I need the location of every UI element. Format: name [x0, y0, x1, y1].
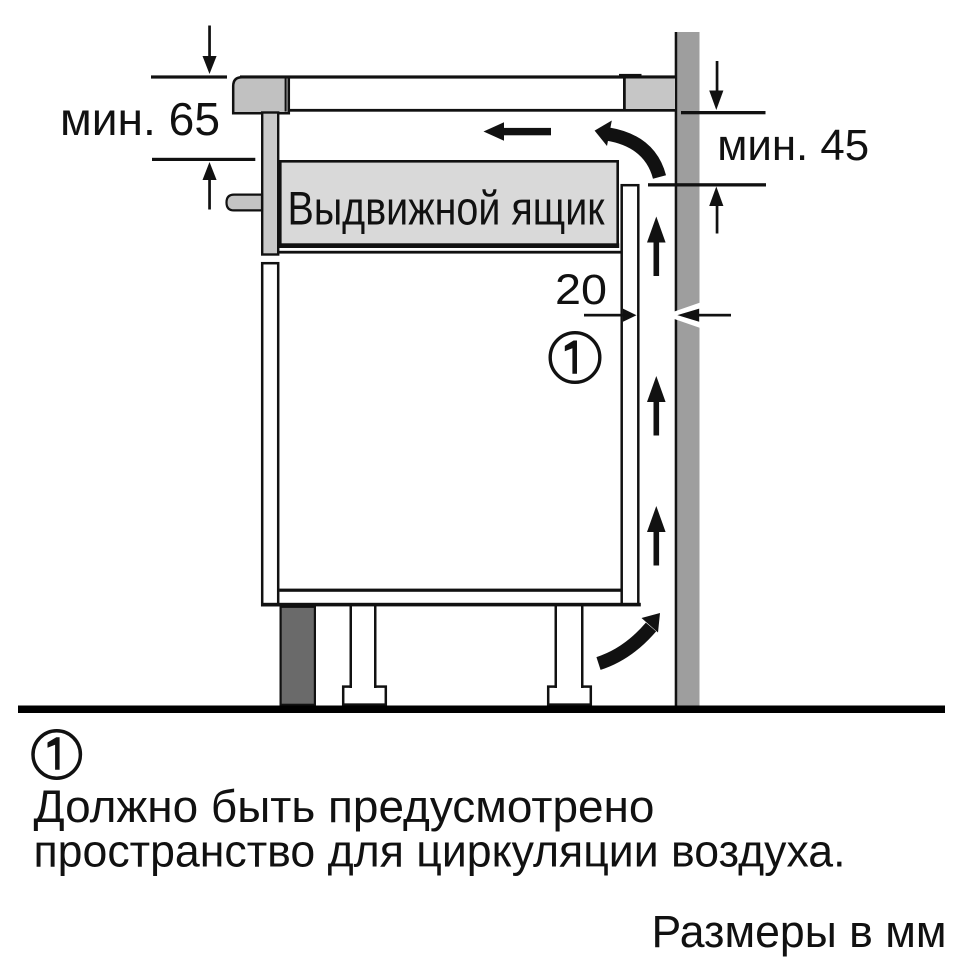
- svg-text:пространство для циркуляции во: пространство для циркуляции воздуха.: [34, 826, 846, 877]
- svg-text:Размеры в мм: Размеры в мм: [652, 906, 947, 957]
- svg-text:Выдвижной ящик: Выдвижной ящик: [288, 182, 605, 235]
- svg-text:мин. 65: мин. 65: [60, 93, 220, 145]
- svg-text:20: 20: [555, 266, 607, 314]
- svg-text:Должно быть предусмотрено: Должно быть предусмотрено: [34, 781, 655, 832]
- svg-text:мин. 45: мин. 45: [717, 121, 869, 170]
